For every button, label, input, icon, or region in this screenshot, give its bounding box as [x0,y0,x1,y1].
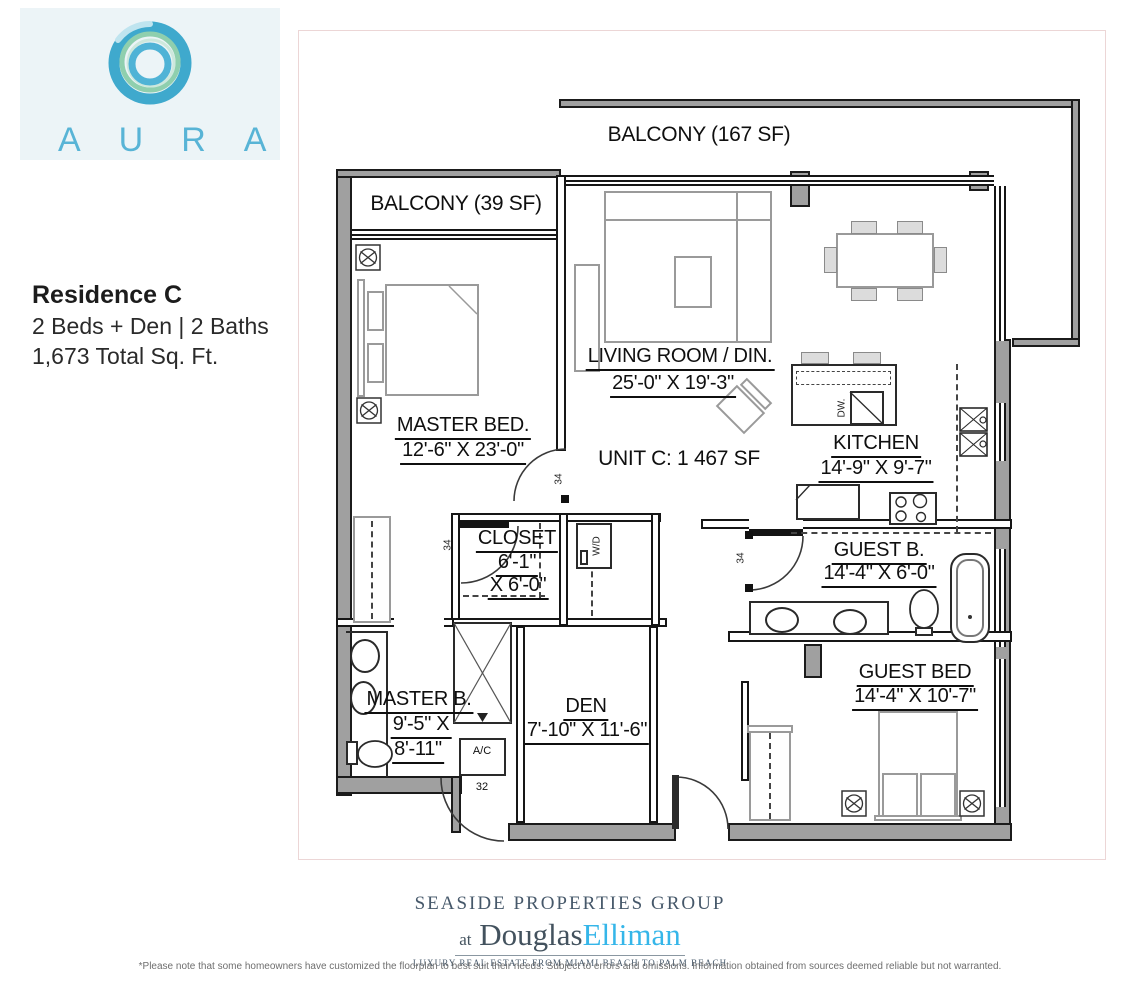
kitchen-label: KITCHEN [831,432,921,458]
door-hinge [561,495,569,503]
master-bath-label: MASTER B. [364,688,473,714]
aura-swirl-icon [106,18,194,110]
ceiling-fan-icon [842,791,866,816]
entry-door-arc [441,778,504,841]
toilet [358,741,392,767]
ceiling-fan-icon [960,791,984,816]
brand-douglas: Douglas [479,917,582,952]
ceiling-fan-icon [356,245,380,270]
door-number: 34 [554,473,565,484]
kitchen-sink [960,408,987,456]
guest-bath-dims: 14'-4" X 6'-0" [821,562,936,588]
living-label: LIVING ROOM / DIN. [586,345,775,371]
residence-sqft: 1,673 Total Sq. Ft. [32,343,218,370]
master-bath-dims1: 9'-5" X [391,713,452,739]
broker-group-name: SEASIDE PROPERTIES GROUP [370,893,770,915]
living-dims: 25'-0" X 19'-3" [610,372,736,398]
page: AURA Residence C 2 Beds + Den | 2 Baths … [0,0,1140,986]
balcony-small-label: BALCONY (39 SF) [370,192,541,216]
door-arc [749,536,803,590]
dishwasher-label: DW. [837,399,848,418]
kitchen-dims: 14'-9" X 9'-7" [818,457,933,483]
master-bath-dims2: 8'-11" [392,738,444,764]
closet-label: CLOSET [476,527,558,553]
aura-wordmark: AURA [20,121,280,160]
cooktop-burners [896,495,927,522]
ac-label: A/C [473,745,491,757]
broker-logo: SEASIDE PROPERTIES GROUP at DouglasEllim… [370,893,770,968]
blanket-fold-line [449,286,477,314]
ceiling-fan-icon [357,398,381,423]
door-hinge [745,531,753,539]
aura-logo: AURA [20,8,280,160]
door-leaf [672,775,679,829]
master-bed-dims: 12'-6" X 23'-0" [400,439,526,465]
douglas-elliman-wordmark: at DouglasElliman [370,917,770,953]
brand-elliman: Elliman [583,917,681,952]
guest-bed-label: GUEST BED [857,661,974,687]
den-label: DEN [563,695,608,721]
washer-dryer-label: W/D [592,536,603,555]
brand-at: at [459,930,471,949]
fridge-line [796,485,810,500]
door-arc [676,777,728,829]
brand-rule [455,955,685,956]
tub-drain [968,615,972,619]
residence-beds-baths: 2 Beds + Den | 2 Baths [32,313,269,340]
den-dims: 7'-10" X 11'-6" [525,719,649,745]
door-hinge [745,584,753,592]
disclaimer-text: *Please note that some homeowners have c… [0,961,1140,972]
guest-bed-dims: 14'-4" X 10'-7" [852,685,978,711]
balcony-large-label: BALCONY (167 SF) [608,123,791,147]
dishwasher-line [850,392,883,424]
ac-number: 32 [476,781,488,793]
closet-dims2: X 6'-0" [488,574,549,600]
master-bed-label: MASTER BED. [395,414,531,440]
door-number: 34 [443,539,454,550]
door-number: 34 [736,552,747,563]
residence-title: Residence C [32,281,182,310]
floorplan: BALCONY (167 SF) BALCONY (39 SF) MASTER … [298,30,1106,860]
unit-label: UNIT C: 1 467 SF [598,447,760,471]
toilet [910,590,938,628]
